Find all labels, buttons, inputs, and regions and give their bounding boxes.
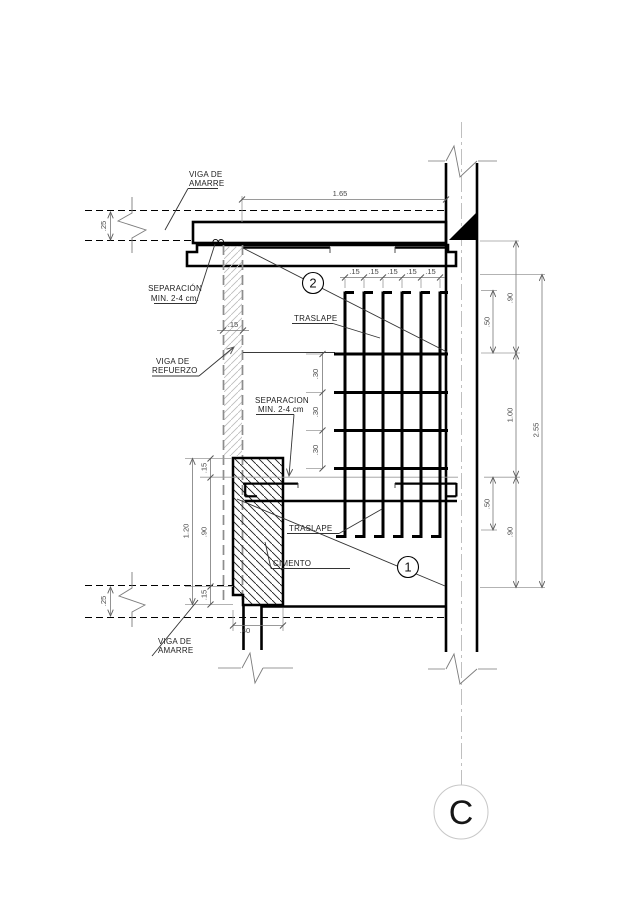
dim-stirrup-15: .15 [425, 267, 436, 276]
dim-right-100: 1.00 [506, 408, 515, 423]
svg-text:VIGA DE: VIGA DE [156, 357, 189, 366]
drawing-sheet: C [0, 0, 620, 905]
svg-text:CIMENTO: CIMENTO [273, 559, 311, 568]
top-tie-beam [85, 197, 477, 266]
dim-right-50-bot: .50 [483, 499, 492, 510]
svg-text:REFUERZO: REFUERZO [152, 366, 198, 375]
weld-corner-triangle [449, 212, 477, 240]
svg-text:MIN. 2-4 cm.: MIN. 2-4 cm. [151, 294, 199, 303]
dim-footing-width: .40 [240, 626, 251, 635]
label-viga-amarre-bottom: VIGA DE AMARRE [152, 600, 198, 656]
dim-right-total: 2.55 [532, 423, 541, 438]
svg-text:2: 2 [309, 276, 316, 291]
svg-text:VIGA DE: VIGA DE [158, 637, 191, 646]
svg-text:SEPARACIÓN: SEPARACIÓN [148, 284, 202, 293]
dim-bar-30: .30 [311, 369, 320, 380]
dim-beam-depth-bottom: .25 [99, 596, 108, 607]
structural-detail-canvas: C [0, 0, 620, 905]
svg-text:SEPARACION: SEPARACION [255, 396, 309, 405]
dim-left-15-bot: .15 [200, 590, 209, 601]
label-separacion-top: SEPARACIÓN MIN. 2-4 cm. [148, 244, 215, 304]
grid-bubble-letter: C [449, 794, 474, 832]
svg-text:VIGA DE: VIGA DE [189, 170, 222, 179]
dim-right-90-bot: .90 [506, 527, 515, 538]
foundation-block [218, 458, 293, 683]
svg-text:TRASLAPE: TRASLAPE [289, 524, 332, 533]
svg-text:MIN. 2-4 cm: MIN. 2-4 cm [258, 405, 304, 414]
label-traslape-upper: TRASLAPE [292, 314, 380, 338]
svg-text:TRASLAPE: TRASLAPE [294, 314, 337, 323]
dim-left-90: .90 [200, 527, 209, 538]
dim-left-total: 1.20 [182, 524, 191, 539]
dim-stirrup-15: .15 [406, 267, 417, 276]
label-viga-refuerzo: VIGA DE REFUERZO [152, 347, 234, 376]
dim-stirrup-top-ticks [342, 275, 443, 289]
dim-beam-depth-top: .25 [99, 221, 108, 232]
dim-left-15-top: .15 [200, 463, 209, 474]
dim-strip-width: .15 [228, 320, 239, 329]
svg-text:1: 1 [404, 560, 411, 575]
label-traslape-lower: TRASLAPE [287, 509, 382, 534]
dim-right-50-top: .50 [483, 317, 492, 328]
svg-text:AMARRE: AMARRE [158, 646, 193, 655]
dim-right-90-top: .90 [506, 293, 515, 304]
dim-top-span: 1.65 [333, 189, 348, 198]
dim-bar-30: .30 [311, 445, 320, 456]
horizontal-rebar-bars [334, 354, 448, 469]
dim-stirrup-15: .15 [387, 267, 398, 276]
dim-bar-30: .30 [311, 407, 320, 418]
dim-stirrup-15: .15 [368, 267, 379, 276]
svg-text:AMARRE: AMARRE [189, 179, 224, 188]
dim-stirrup-15: .15 [349, 267, 360, 276]
